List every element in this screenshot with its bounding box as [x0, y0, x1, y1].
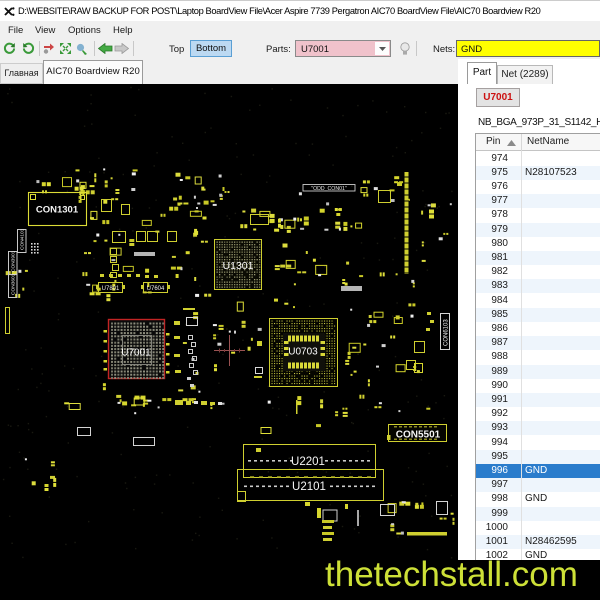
svg-text:U2101: U2101: [292, 481, 326, 493]
svg-text:CON5501: CON5501: [396, 430, 441, 441]
svg-text:CON6103: CON6103: [444, 319, 450, 346]
svg-text:U2201: U2201: [291, 456, 325, 468]
svg-text:U1301: U1301: [223, 260, 254, 272]
svg-text:U7001: U7001: [121, 348, 151, 359]
svg-text:CON1301: CON1301: [36, 205, 79, 216]
svg-text:"ODD_CON01": "ODD_CON01": [311, 186, 347, 192]
svg-text:CON4101: CON4101: [20, 228, 26, 250]
svg-text:U7801: U7801: [102, 286, 120, 292]
svg-text:CON3901: CON3901: [11, 250, 17, 272]
svg-text:U0703: U0703: [288, 347, 318, 358]
svg-text:U7604: U7604: [147, 286, 165, 292]
svg-text:CON3601: CON3601: [11, 273, 17, 295]
